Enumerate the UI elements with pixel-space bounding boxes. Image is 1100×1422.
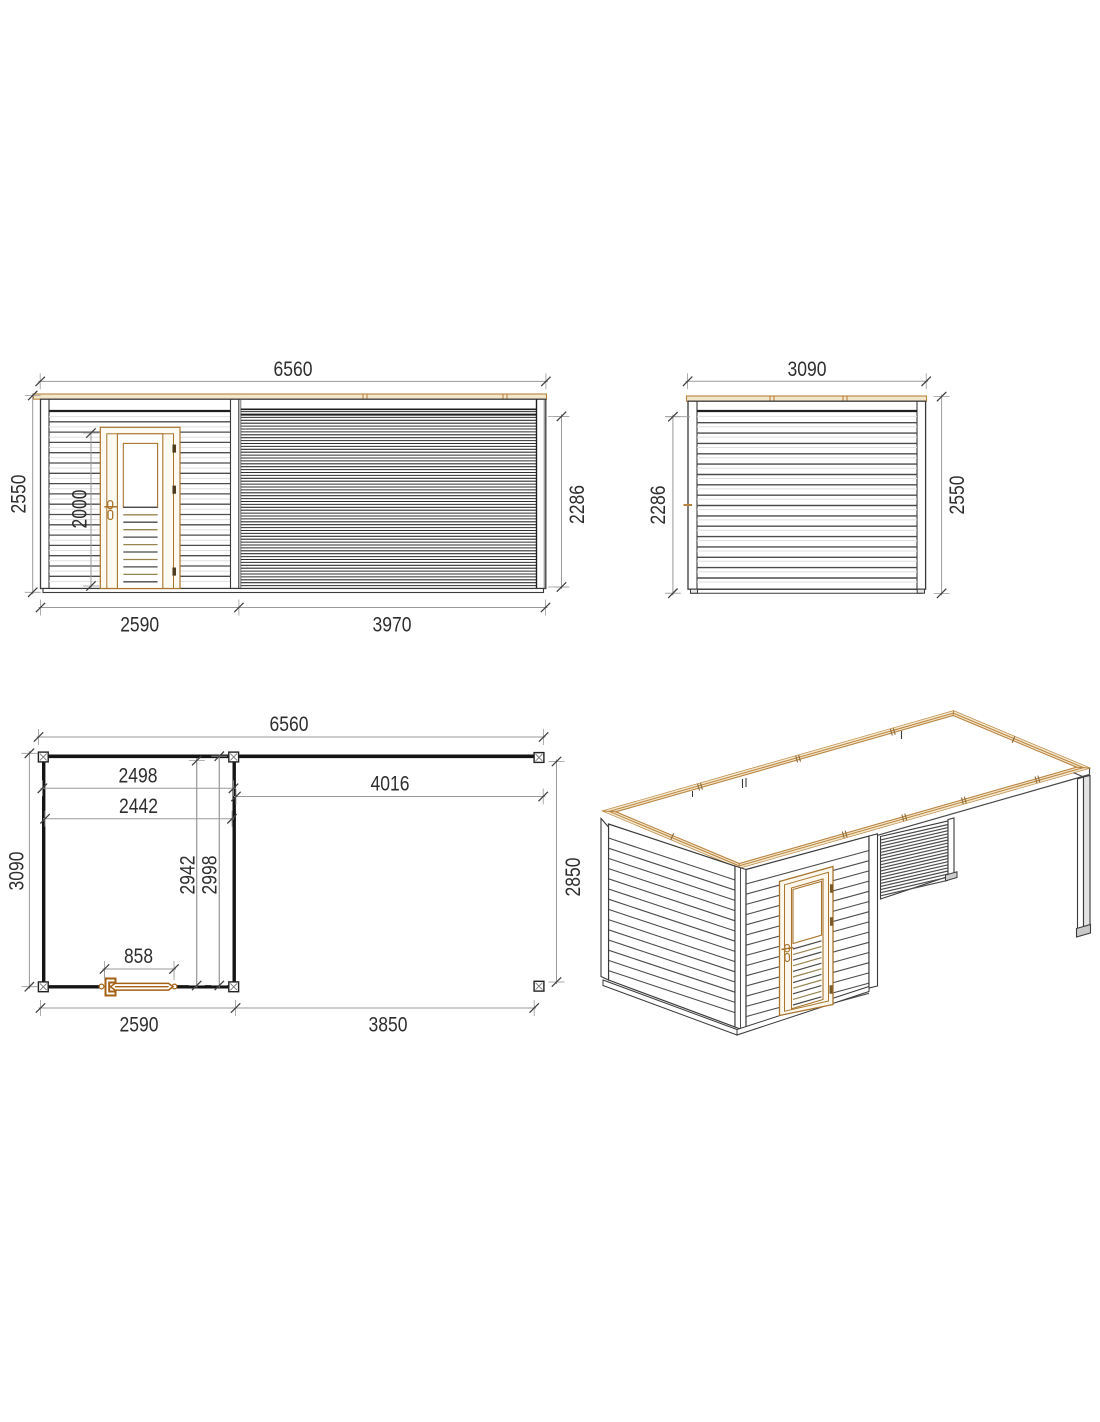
svg-text:2590: 2590 (120, 1013, 159, 1037)
svg-text:6560: 6560 (270, 712, 309, 736)
svg-text:2550: 2550 (7, 474, 31, 513)
svg-text:2850: 2850 (561, 857, 585, 896)
svg-text:2286: 2286 (565, 485, 589, 524)
svg-text:2000: 2000 (68, 489, 92, 528)
svg-text:2590: 2590 (120, 613, 159, 637)
svg-text:2942: 2942 (176, 856, 200, 895)
svg-text:3970: 3970 (373, 613, 412, 637)
svg-text:2998: 2998 (198, 855, 222, 894)
svg-text:3850: 3850 (369, 1013, 408, 1037)
svg-text:2286: 2286 (646, 485, 670, 524)
svg-text:6560: 6560 (274, 357, 313, 381)
svg-text:2442: 2442 (119, 794, 158, 818)
svg-text:2498: 2498 (119, 764, 158, 788)
svg-text:4016: 4016 (371, 772, 410, 796)
svg-text:3090: 3090 (788, 357, 827, 381)
svg-text:2550: 2550 (945, 475, 969, 514)
svg-text:858: 858 (124, 944, 153, 968)
svg-text:3090: 3090 (5, 851, 29, 890)
